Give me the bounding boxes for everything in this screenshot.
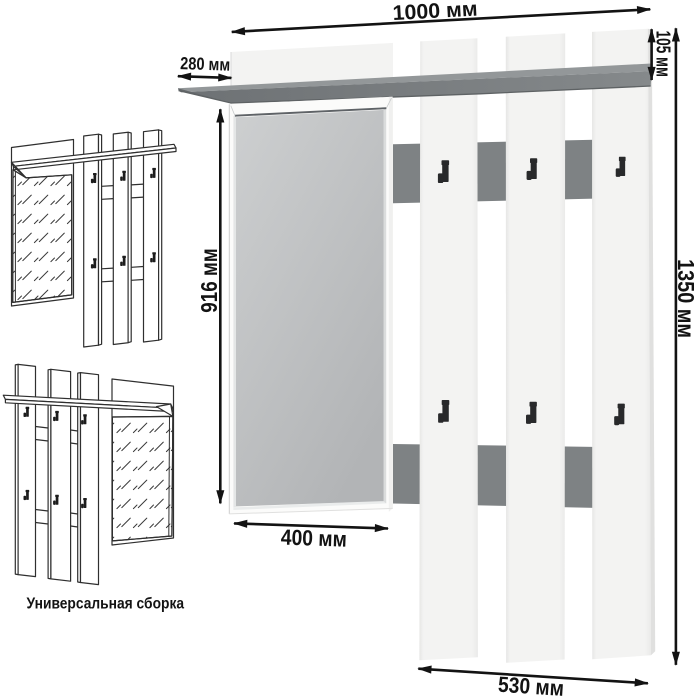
svg-text:916 мм: 916 мм: [196, 248, 222, 312]
svg-text:1350 мм: 1350 мм: [673, 259, 699, 338]
svg-text:105 мм: 105 мм: [651, 31, 673, 77]
svg-text:530 мм: 530 мм: [497, 672, 564, 700]
svg-text:Универсальная сборка: Универсальная сборка: [27, 596, 185, 613]
svg-text:400 мм: 400 мм: [280, 525, 347, 552]
svg-text:280 мм: 280 мм: [180, 53, 231, 75]
